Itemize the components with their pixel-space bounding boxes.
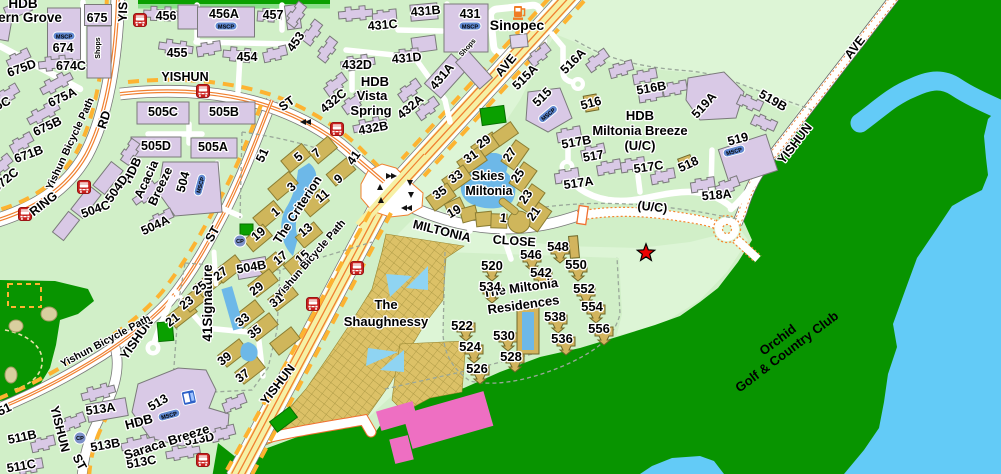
svg-text:Spring: Spring bbox=[350, 103, 391, 118]
svg-text:Miltonia Breeze: Miltonia Breeze bbox=[592, 123, 687, 138]
svg-text:Skies: Skies bbox=[472, 169, 505, 183]
svg-text:505C: 505C bbox=[148, 105, 178, 119]
svg-text:538: 538 bbox=[544, 309, 566, 324]
svg-text:Miltonia: Miltonia bbox=[465, 184, 513, 198]
svg-text:455: 455 bbox=[167, 46, 188, 60]
svg-text:454: 454 bbox=[237, 50, 258, 64]
svg-text:528: 528 bbox=[500, 349, 522, 364]
svg-text:536: 536 bbox=[551, 331, 573, 346]
svg-text:505B: 505B bbox=[209, 105, 239, 119]
svg-text:The: The bbox=[374, 297, 397, 312]
svg-text:(U/C): (U/C) bbox=[624, 138, 655, 153]
svg-text:CLOSE: CLOSE bbox=[492, 233, 536, 250]
svg-text:431B: 431B bbox=[410, 3, 441, 20]
svg-text:431: 431 bbox=[460, 7, 481, 21]
svg-text:542: 542 bbox=[530, 265, 552, 280]
svg-text:674: 674 bbox=[53, 41, 74, 55]
svg-text:675: 675 bbox=[87, 11, 108, 25]
svg-text:554: 554 bbox=[581, 299, 603, 314]
svg-text:674C: 674C bbox=[56, 59, 86, 73]
svg-text:YIS: YIS bbox=[116, 2, 131, 23]
svg-text:HDB: HDB bbox=[361, 74, 389, 89]
svg-text:552: 552 bbox=[573, 281, 595, 296]
svg-text:CP: CP bbox=[76, 436, 84, 442]
svg-text:ern Grove: ern Grove bbox=[0, 10, 62, 25]
svg-text:Vista: Vista bbox=[357, 88, 389, 103]
svg-text:432D: 432D bbox=[342, 58, 372, 72]
svg-text:Sinopec: Sinopec bbox=[490, 17, 545, 33]
svg-text:505D: 505D bbox=[141, 139, 171, 153]
svg-text:505A: 505A bbox=[198, 140, 228, 154]
svg-text:546: 546 bbox=[520, 247, 542, 262]
svg-text:534: 534 bbox=[479, 279, 501, 294]
svg-text:520: 520 bbox=[481, 258, 503, 273]
svg-text:HDB: HDB bbox=[626, 108, 654, 123]
svg-text:CP: CP bbox=[236, 239, 244, 245]
svg-text:526: 526 bbox=[466, 361, 488, 376]
svg-text:550: 550 bbox=[565, 257, 587, 272]
svg-text:457: 457 bbox=[263, 8, 284, 22]
svg-text:Shops: Shops bbox=[95, 37, 102, 58]
svg-text:456A: 456A bbox=[209, 7, 239, 21]
svg-text:530: 530 bbox=[493, 328, 515, 343]
svg-text:431D: 431D bbox=[391, 50, 422, 67]
svg-text:431C: 431C bbox=[367, 17, 398, 34]
svg-text:524: 524 bbox=[459, 339, 481, 354]
svg-text:522: 522 bbox=[451, 318, 473, 333]
svg-text:518A: 518A bbox=[701, 187, 732, 204]
svg-text:548: 548 bbox=[547, 239, 569, 254]
svg-text:YISHUN: YISHUN bbox=[161, 70, 208, 84]
svg-text:456: 456 bbox=[156, 9, 177, 23]
svg-text:556: 556 bbox=[588, 321, 610, 336]
svg-text:Shaughnessy: Shaughnessy bbox=[344, 314, 429, 329]
